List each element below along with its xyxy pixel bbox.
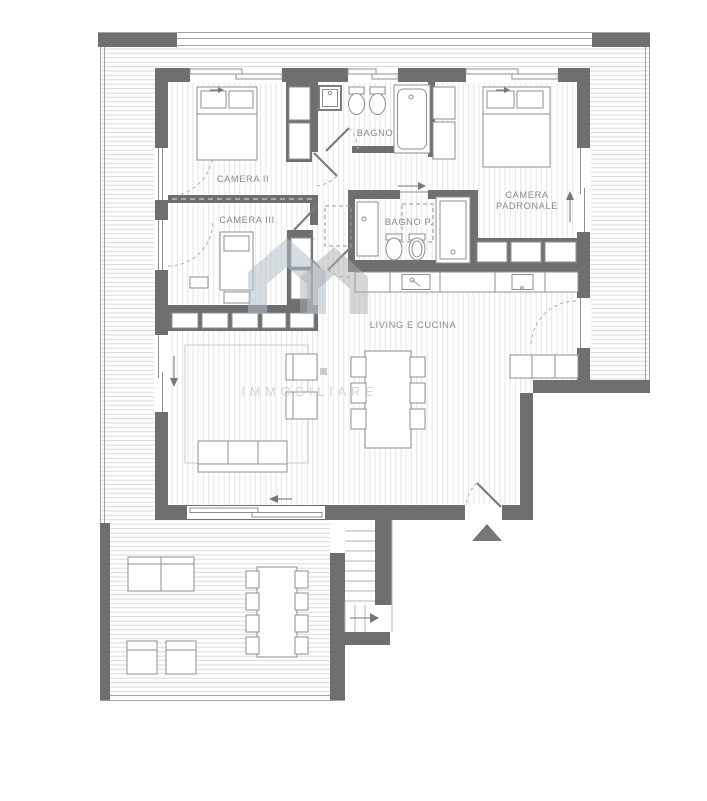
room-label-camera-padronale-line2: PADRONALE bbox=[496, 201, 558, 211]
watermark-text: IMMOBILIARE bbox=[242, 385, 379, 399]
floor-plan-page: IMMOBILIARE CAMERA II CAMERA III BAGNO B… bbox=[0, 0, 707, 801]
room-camera-ii bbox=[197, 82, 312, 162]
floor-plan-drawing: IMMOBILIARE CAMERA II CAMERA III BAGNO B… bbox=[0, 0, 707, 801]
balcony-cap-top-right bbox=[592, 33, 650, 47]
room-label-bagno-p: BAGNO P. bbox=[385, 217, 434, 227]
room-label-camera-padronale-line1: CAMERA bbox=[505, 190, 549, 200]
entrance-marker-triangle bbox=[472, 524, 502, 541]
room-label-camera-iii: CAMERA III bbox=[219, 215, 275, 225]
terrace-wall-left bbox=[100, 523, 110, 700]
balcony-cap-top-left bbox=[98, 33, 177, 47]
balcony-end-wall-right bbox=[520, 380, 650, 393]
room-label-bagno: BAGNO bbox=[357, 128, 394, 138]
terrace-wall-right bbox=[330, 553, 345, 700]
room-label-camera-ii: CAMERA II bbox=[217, 174, 269, 184]
room-label-living-cucina: LIVING E CUCINA bbox=[370, 320, 457, 330]
entrance-opening bbox=[465, 504, 502, 521]
